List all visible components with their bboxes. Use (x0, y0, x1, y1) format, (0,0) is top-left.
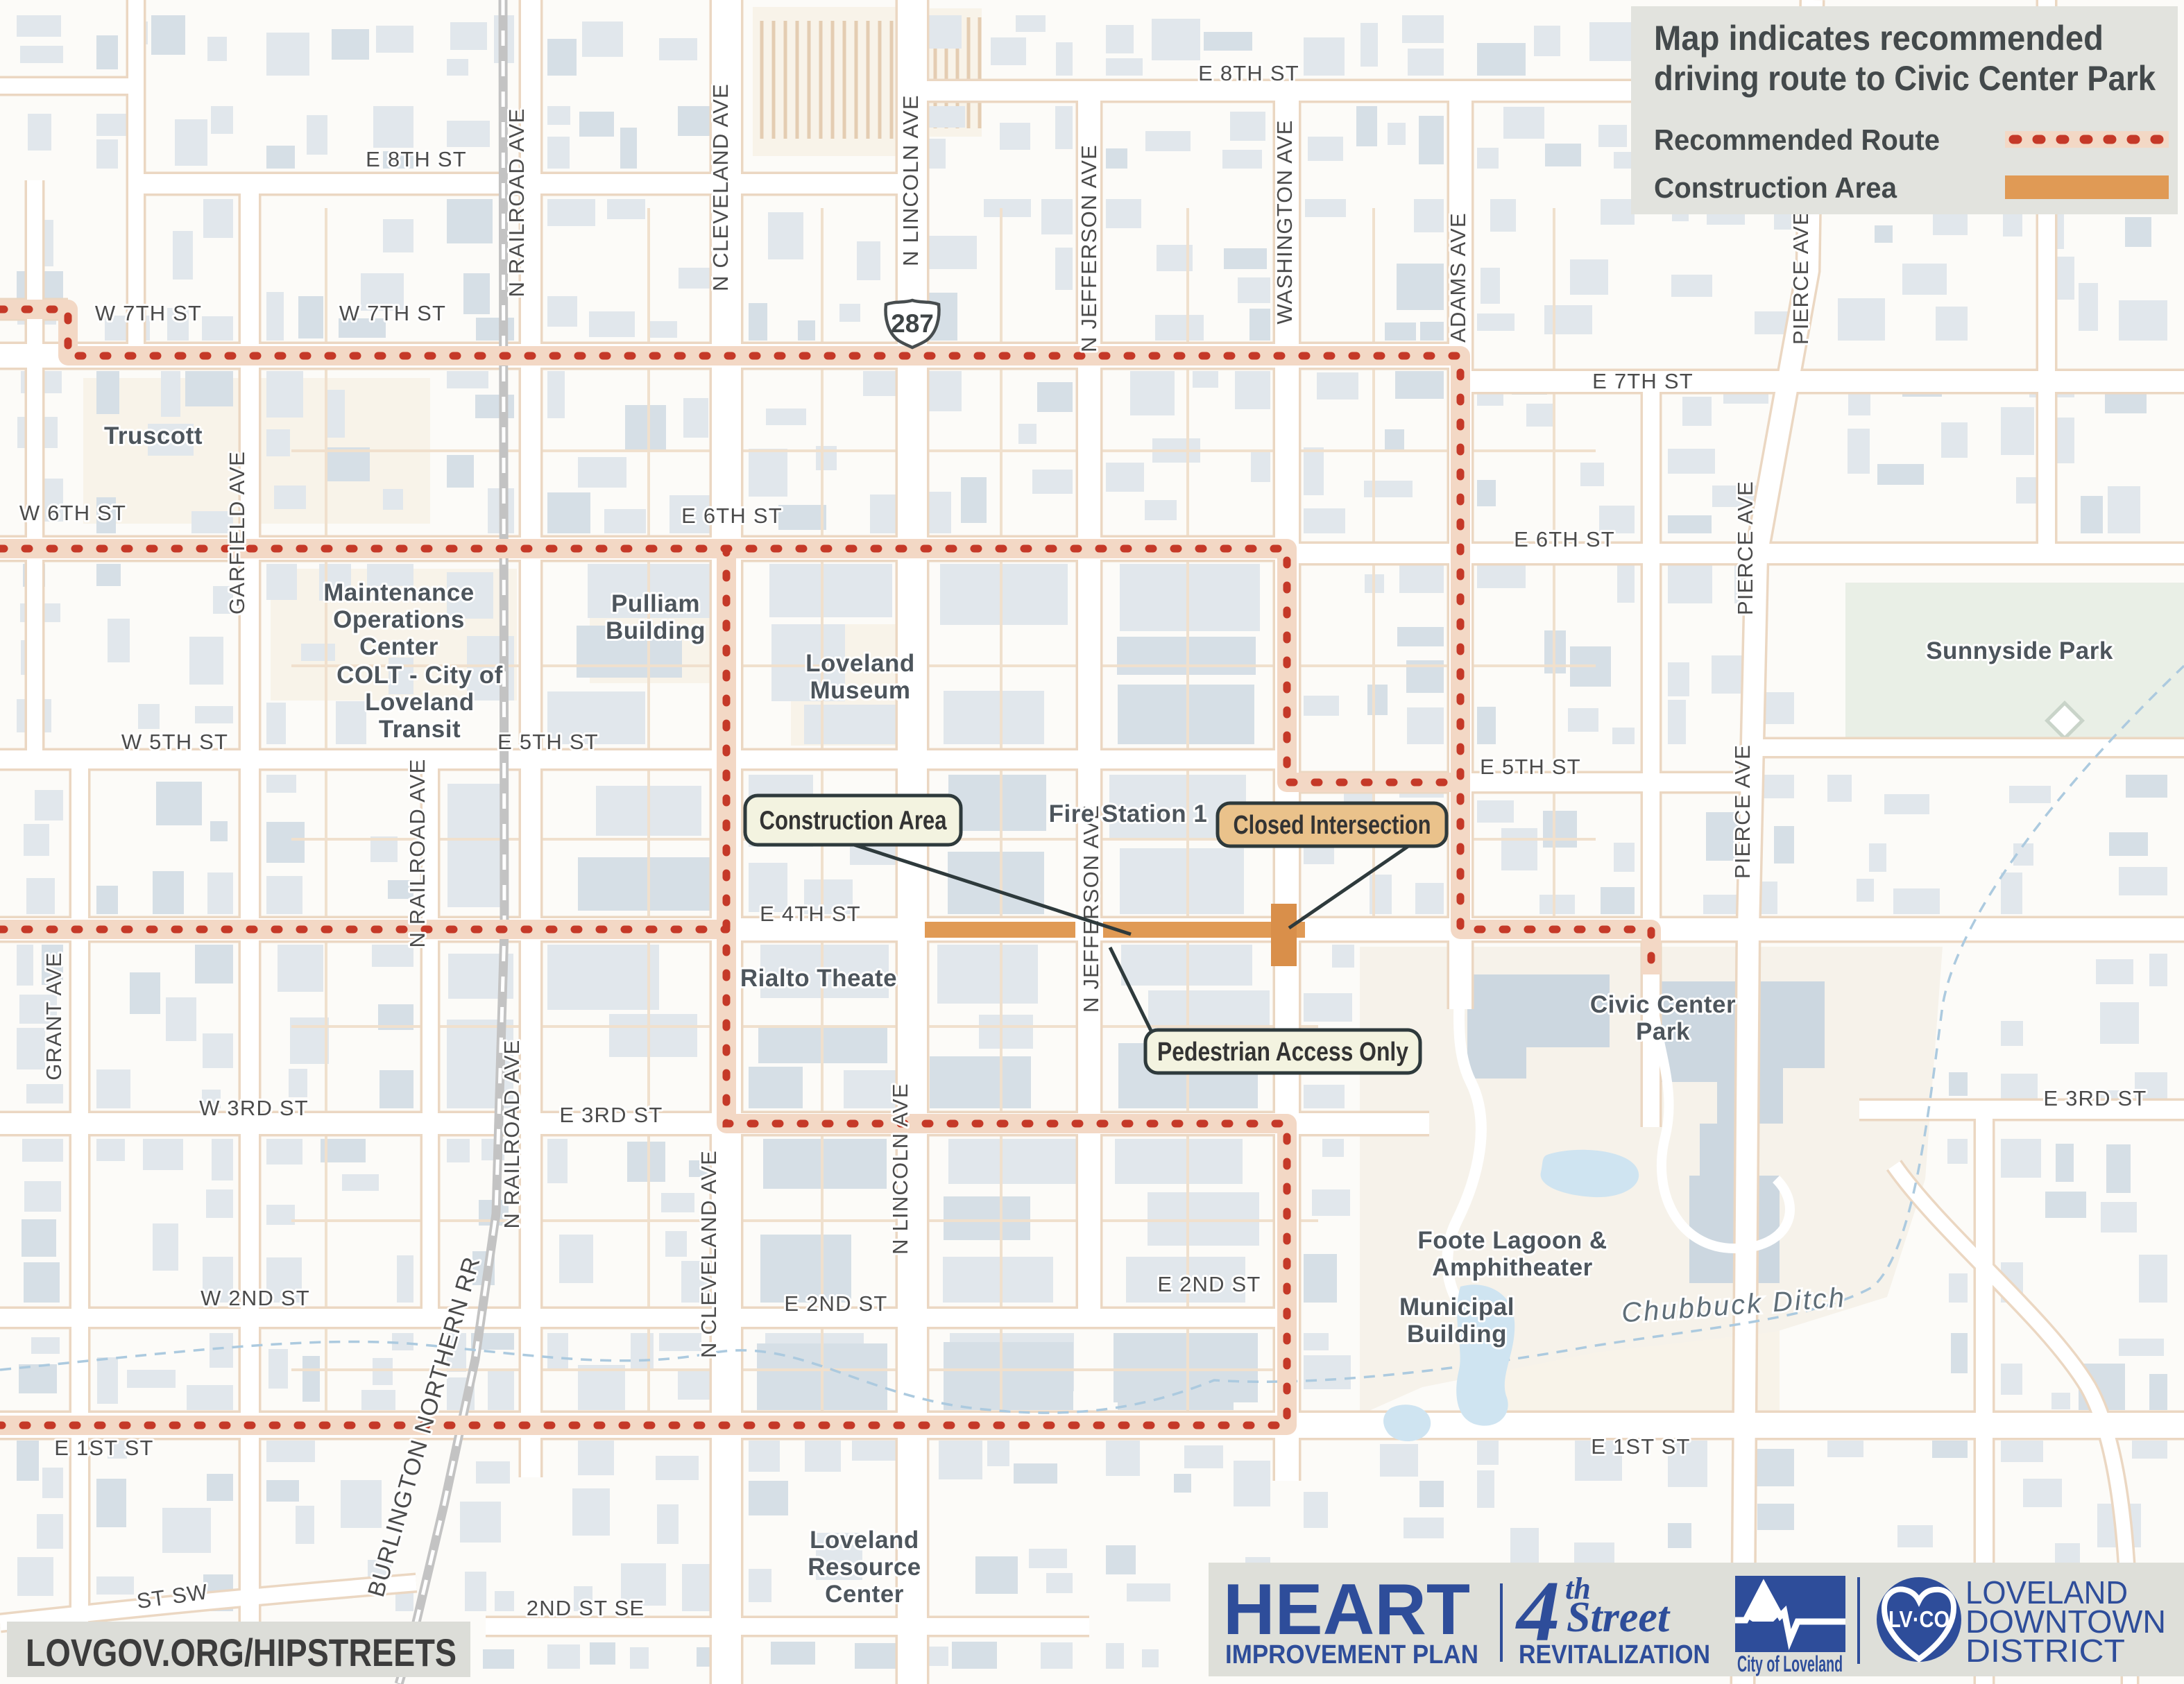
svg-text:2ND ST SE: 2ND ST SE (527, 1596, 645, 1620)
svg-text:GARFIELD AVE: GARFIELD AVE (225, 451, 249, 615)
svg-text:Resource: Resource (808, 1554, 921, 1581)
svg-text:Fire Station 1: Fire Station 1 (1049, 800, 1208, 827)
svg-text:E 1ST ST: E 1ST ST (1591, 1434, 1690, 1459)
svg-text:E 8TH ST: E 8TH ST (1198, 61, 1299, 85)
svg-text:Construction Area: Construction Area (1654, 171, 1897, 204)
svg-text:LOVGOV.ORG/HIPSTREETS: LOVGOV.ORG/HIPSTREETS (26, 1631, 457, 1674)
svg-text:GRANT AVE: GRANT AVE (42, 952, 66, 1080)
svg-text:E 3RD ST: E 3RD ST (2043, 1086, 2147, 1110)
svg-text:Loveland: Loveland (810, 1527, 919, 1554)
svg-text:W 5TH ST: W 5TH ST (121, 730, 228, 754)
svg-text:Pulliam: Pulliam (611, 590, 700, 617)
svg-text:Amphitheater: Amphitheater (1432, 1254, 1593, 1281)
svg-text:Loveland: Loveland (805, 650, 915, 677)
svg-text:N RAILROAD AVE: N RAILROAD AVE (500, 1040, 524, 1229)
svg-text:Museum: Museum (810, 677, 911, 704)
svg-text:E 2ND ST: E 2ND ST (1157, 1272, 1261, 1296)
svg-text:N CLEVELAND AVE: N CLEVELAND AVE (708, 83, 733, 291)
svg-text:N JEFFERSON AVE: N JEFFERSON AVE (1077, 144, 1101, 352)
svg-text:E 7TH ST: E 7TH ST (1592, 369, 1694, 393)
svg-text:Civic Center: Civic Center (1590, 991, 1736, 1018)
svg-text:Loveland: Loveland (365, 689, 475, 716)
svg-text:PIERCE AVE: PIERCE AVE (1733, 481, 1757, 615)
svg-text:E 1ST ST: E 1ST ST (54, 1436, 153, 1460)
svg-text:N LINCOLN AVE: N LINCOLN AVE (898, 94, 923, 266)
svg-text:HEART: HEART (1223, 1570, 1470, 1650)
svg-text:N RAILROAD AVE: N RAILROAD AVE (405, 759, 429, 948)
svg-text:IMPROVEMENT PLAN: IMPROVEMENT PLAN (1225, 1640, 1478, 1669)
svg-text:Operations: Operations (333, 606, 465, 633)
svg-text:E 5TH ST: E 5TH ST (1480, 755, 1581, 779)
svg-text:N CLEVELAND AVE: N CLEVELAND AVE (697, 1150, 721, 1358)
svg-text:WASHINGTON AVE: WASHINGTON AVE (1272, 119, 1297, 324)
svg-text:Construction Area: Construction Area (760, 807, 948, 836)
svg-text:Maintenance: Maintenance (323, 579, 475, 606)
svg-text:REVITALIZATION: REVITALIZATION (1519, 1640, 1710, 1669)
svg-text:W 3RD ST: W 3RD ST (199, 1096, 309, 1120)
svg-text:N RAILROAD AVE: N RAILROAD AVE (504, 108, 529, 298)
svg-text:Foote Lagoon &: Foote Lagoon & (1417, 1227, 1607, 1254)
svg-text:ADAMS AVE: ADAMS AVE (1446, 212, 1470, 343)
svg-text:City of Loveland: City of Loveland (1737, 1651, 1843, 1676)
svg-text:Recommended Route: Recommended Route (1654, 123, 1940, 156)
svg-text:N LINCOLN AVE: N LINCOLN AVE (888, 1083, 912, 1255)
svg-text:Street: Street (1567, 1594, 1671, 1641)
svg-text:Rialto Theate: Rialto Theate (740, 965, 897, 992)
svg-text:Municipal: Municipal (1399, 1294, 1515, 1321)
svg-text:LV·CO: LV·CO (1888, 1606, 1950, 1632)
svg-text:PIERCE AVE: PIERCE AVE (1789, 210, 1813, 345)
svg-text:W 7TH ST: W 7TH ST (339, 301, 446, 325)
svg-text:E 3RD ST: E 3RD ST (559, 1103, 663, 1127)
svg-text:Transit: Transit (379, 716, 461, 743)
svg-text:Park: Park (1636, 1018, 1690, 1045)
svg-text:PIERCE AVE: PIERCE AVE (1730, 744, 1755, 879)
svg-text:Closed Intersection: Closed Intersection (1234, 811, 1431, 840)
svg-text:COLT - City of: COLT - City of (336, 662, 503, 689)
svg-text:Center: Center (825, 1581, 904, 1608)
svg-text:Truscott: Truscott (104, 422, 203, 449)
svg-text:driving route to Civic Center: driving route to Civic Center Park (1654, 59, 2156, 98)
svg-text:W 7TH ST: W 7TH ST (95, 301, 202, 325)
svg-text:E 2ND ST: E 2ND ST (784, 1291, 887, 1316)
svg-text:Map indicates recommended: Map indicates recommended (1654, 19, 2104, 58)
svg-text:N JEFFERSON AVE: N JEFFERSON AVE (1079, 805, 1103, 1013)
svg-text:E 6TH ST: E 6TH ST (1514, 527, 1615, 551)
svg-text:Pedestrian Access Only: Pedestrian Access Only (1157, 1038, 1408, 1067)
svg-text:W 6TH ST: W 6TH ST (19, 501, 126, 525)
svg-text:E 8TH ST: E 8TH ST (366, 147, 467, 171)
svg-text:DISTRICT: DISTRICT (1965, 1633, 2125, 1669)
svg-text:E 4TH ST: E 4TH ST (760, 902, 861, 926)
svg-text:E 6TH ST: E 6TH ST (681, 504, 783, 528)
svg-text:E 5TH ST: E 5TH ST (497, 730, 599, 754)
svg-text:Building: Building (1407, 1321, 1507, 1348)
svg-text:Sunnyside Park: Sunnyside Park (1926, 637, 2113, 664)
svg-text:W 2ND ST: W 2ND ST (201, 1286, 310, 1310)
svg-text:Building: Building (606, 617, 706, 644)
svg-text:Center: Center (359, 633, 438, 660)
svg-text:287: 287 (891, 309, 934, 338)
